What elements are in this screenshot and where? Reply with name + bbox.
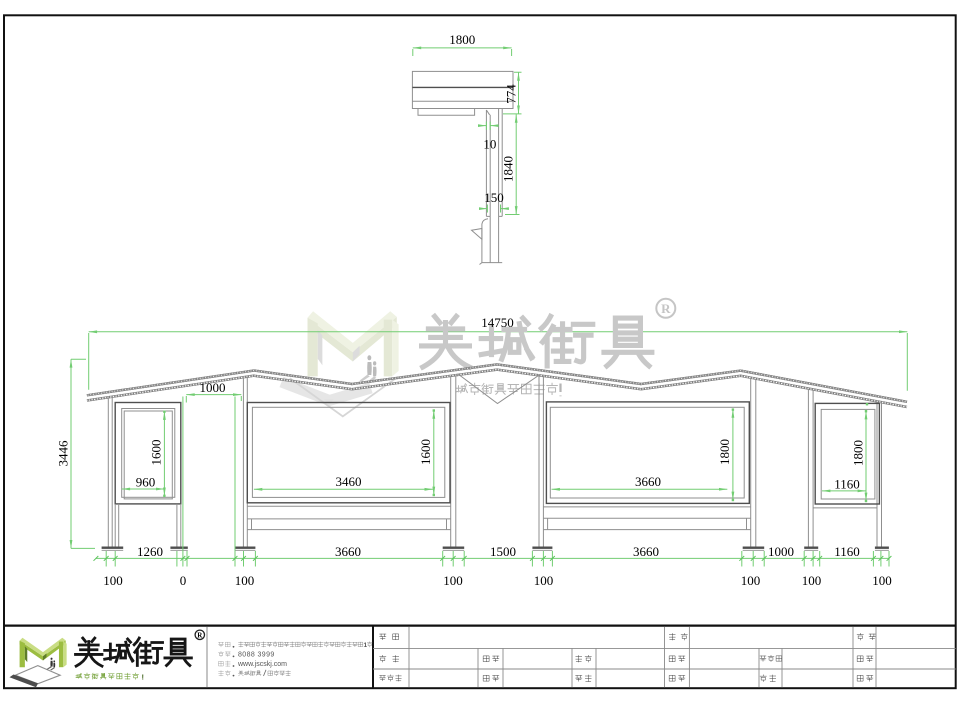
svg-text:1500: 1500: [490, 544, 516, 559]
svg-text:100: 100: [235, 573, 255, 588]
svg-text:960: 960: [136, 475, 156, 490]
svg-text:R: R: [661, 301, 671, 316]
svg-text:100: 100: [872, 573, 892, 588]
svg-text:0: 0: [180, 573, 187, 588]
svg-text:1: 1: [364, 642, 368, 649]
svg-text:3660: 3660: [633, 544, 659, 559]
svg-text:1800: 1800: [850, 440, 865, 466]
svg-text:8088 3999: 8088 3999: [238, 652, 275, 659]
svg-text:100: 100: [534, 573, 554, 588]
svg-text:100: 100: [103, 573, 123, 588]
svg-text:100: 100: [443, 573, 463, 588]
svg-text:www.jscskj.com: www.jscskj.com: [237, 661, 287, 668]
svg-text:3660: 3660: [635, 474, 661, 489]
svg-text:1160: 1160: [834, 477, 860, 492]
svg-text:1840: 1840: [501, 156, 516, 182]
svg-text:100: 100: [802, 573, 822, 588]
svg-text:1600: 1600: [418, 439, 433, 465]
svg-text:1600: 1600: [149, 440, 164, 466]
svg-text:10: 10: [483, 137, 496, 152]
svg-text:1000: 1000: [768, 544, 794, 559]
svg-text:14750: 14750: [481, 315, 514, 330]
svg-text:3446: 3446: [56, 440, 71, 467]
svg-text:!: !: [142, 672, 145, 681]
svg-text:3660: 3660: [335, 544, 361, 559]
svg-text:1160: 1160: [834, 544, 860, 559]
svg-text:3460: 3460: [336, 474, 362, 489]
svg-text:100: 100: [741, 573, 761, 588]
svg-text:1000: 1000: [200, 380, 226, 395]
svg-text:150: 150: [484, 190, 504, 205]
svg-text:1800: 1800: [717, 439, 732, 465]
svg-text:1260: 1260: [137, 544, 163, 559]
svg-text:1800: 1800: [449, 32, 475, 47]
svg-text:774: 774: [504, 84, 519, 104]
